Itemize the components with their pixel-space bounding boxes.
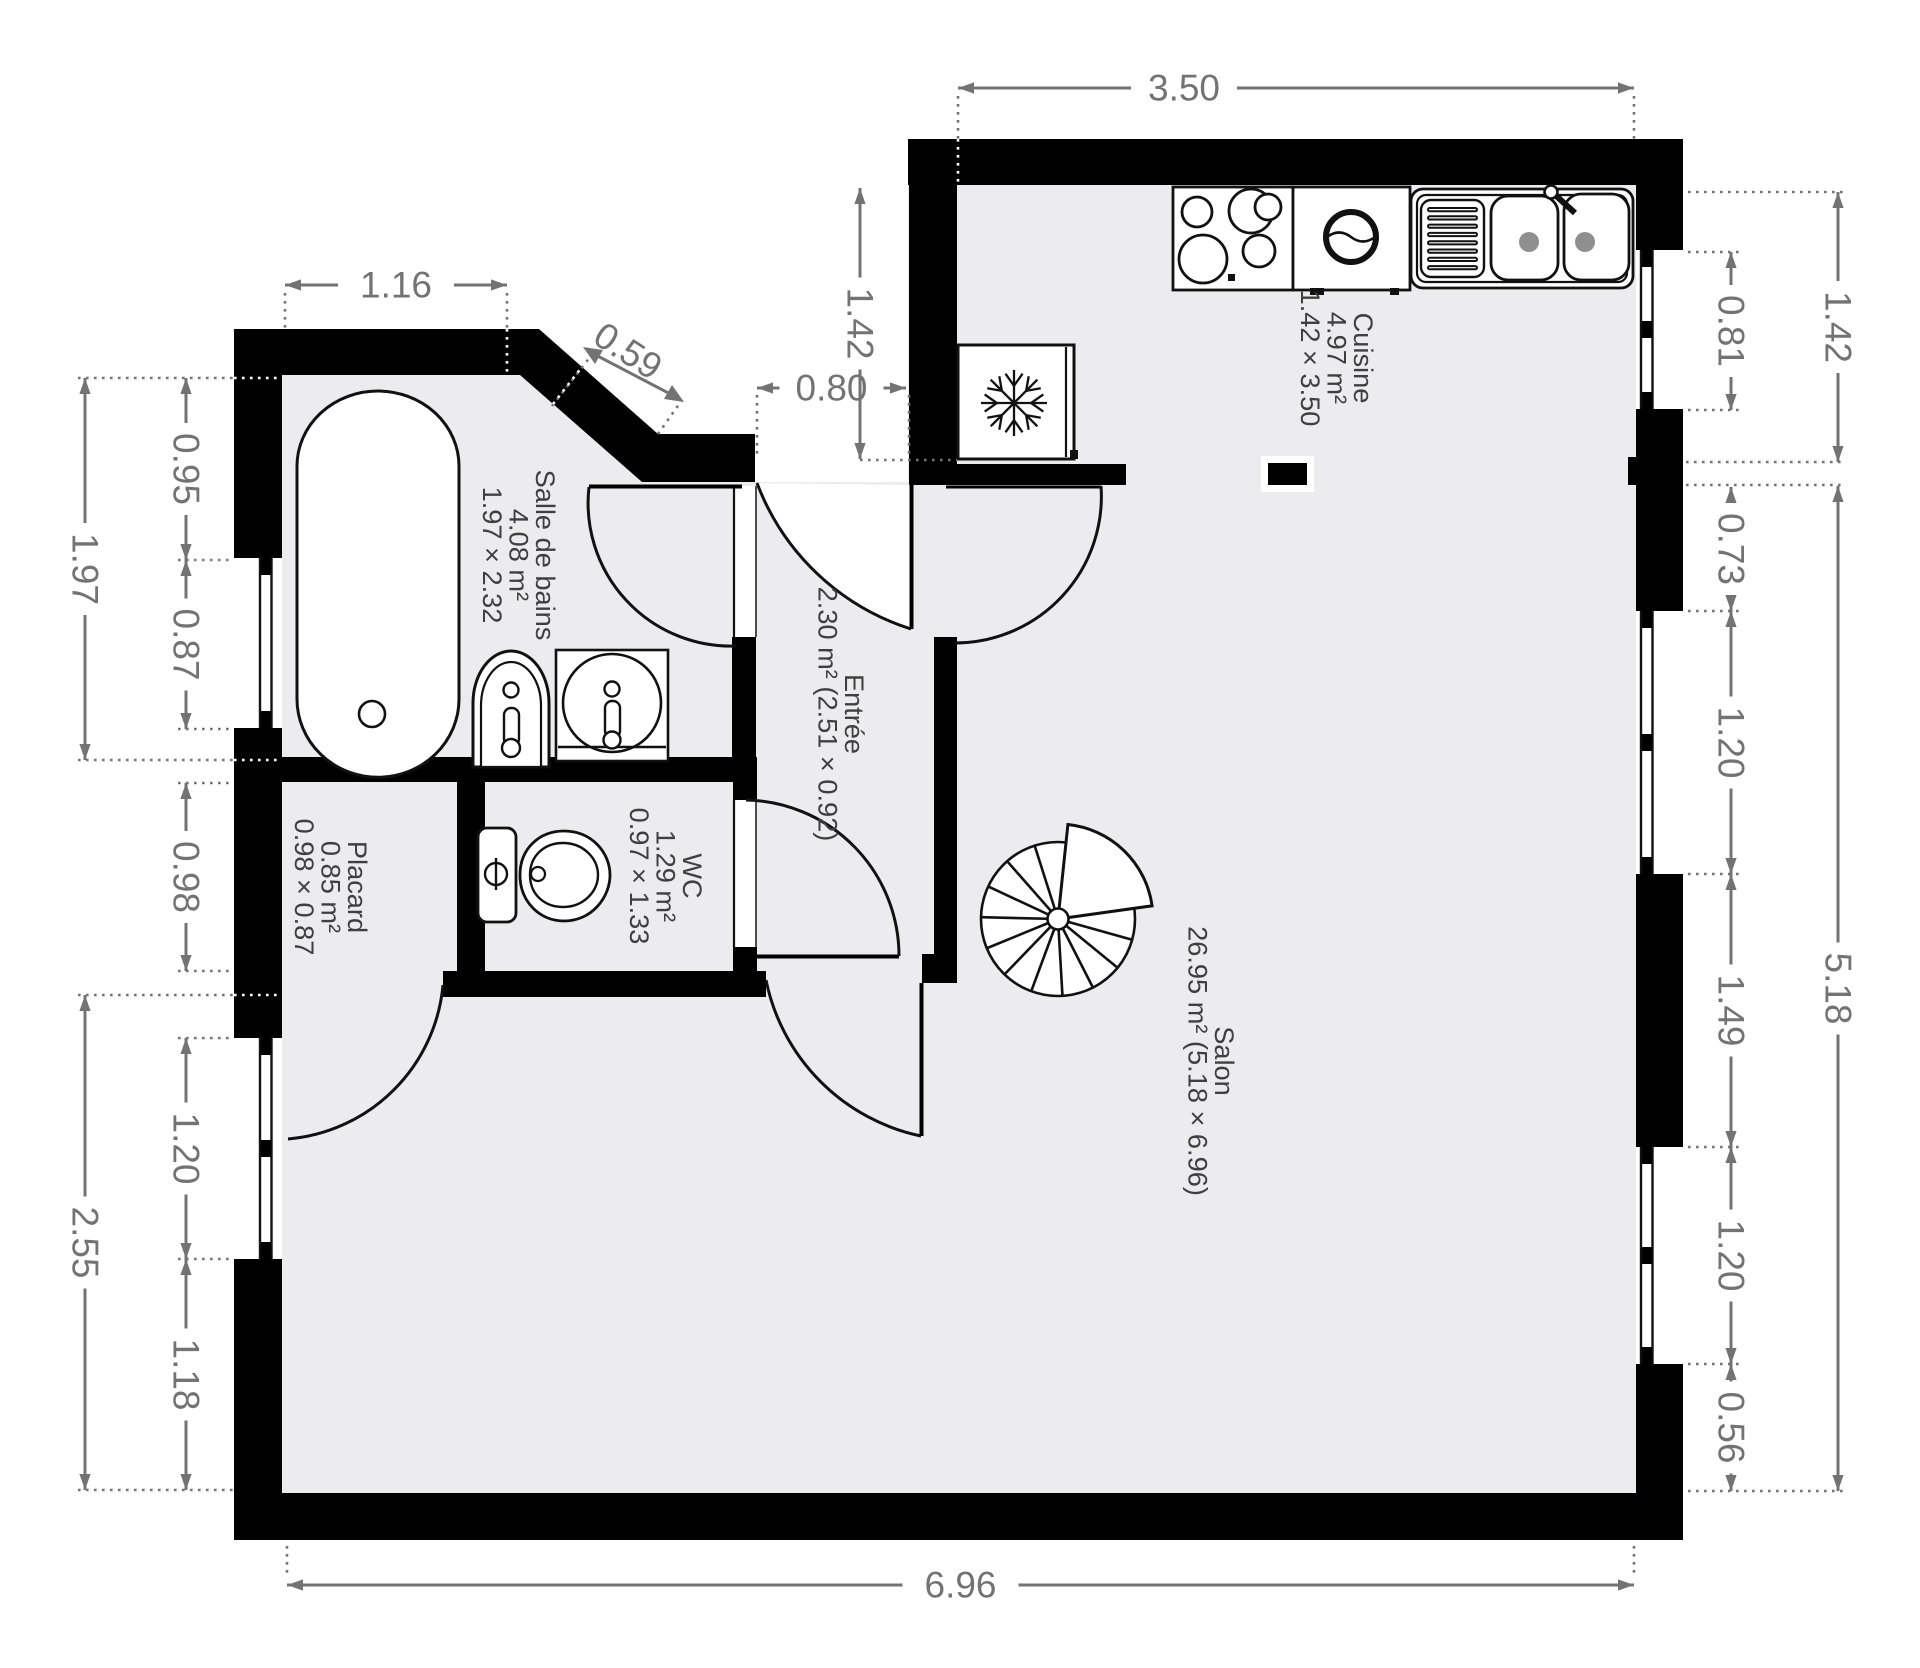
svg-text:0.97 × 1.33: 0.97 × 1.33: [624, 808, 655, 945]
svg-text:3.50: 3.50: [1148, 68, 1220, 109]
svg-text:5.18: 5.18: [1818, 952, 1859, 1024]
svg-text:1.42: 1.42: [1818, 291, 1859, 363]
svg-text:6.96: 6.96: [924, 1565, 996, 1606]
svg-text:2.55: 2.55: [65, 1206, 106, 1278]
svg-text:2.30 m² (2.51 × 0.92): 2.30 m² (2.51 × 0.92): [812, 587, 843, 842]
svg-text:0.98 × 0.87: 0.98 × 0.87: [289, 819, 320, 956]
svg-text:0.98: 0.98: [166, 841, 207, 913]
svg-text:0.87: 0.87: [166, 608, 207, 680]
svg-text:1.42 × 3.50: 1.42 × 3.50: [1295, 290, 1326, 427]
svg-text:1.20: 1.20: [1711, 706, 1752, 778]
svg-text:26.95 m² (5.18 × 6.96): 26.95 m² (5.18 × 6.96): [1182, 926, 1213, 1196]
svg-text:1.18: 1.18: [166, 1338, 207, 1410]
svg-text:1.97: 1.97: [65, 533, 106, 605]
svg-text:0.80: 0.80: [795, 368, 867, 409]
svg-text:0.81: 0.81: [1711, 295, 1752, 367]
svg-text:1.20: 1.20: [1711, 1219, 1752, 1291]
svg-text:1.97 × 2.32: 1.97 × 2.32: [477, 487, 508, 624]
svg-text:1.49: 1.49: [1711, 974, 1752, 1046]
svg-text:0.95: 0.95: [166, 433, 207, 505]
svg-text:1.16: 1.16: [360, 265, 432, 306]
svg-text:1.20: 1.20: [166, 1112, 207, 1184]
svg-text:0.73: 0.73: [1711, 513, 1752, 585]
svg-text:1.42: 1.42: [840, 287, 881, 359]
svg-text:0.56: 0.56: [1711, 1391, 1752, 1463]
